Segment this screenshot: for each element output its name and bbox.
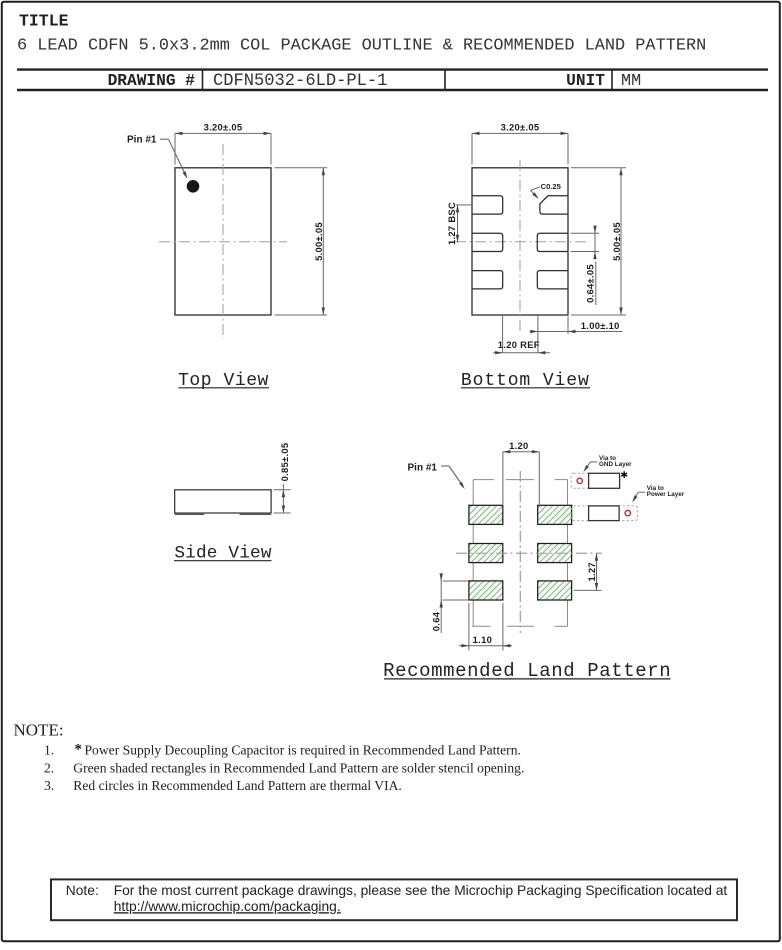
svg-text:1.20 REF: 1.20 REF (498, 339, 540, 350)
svg-text:6 LEAD CDFN 5.0x3.2mm COL PACK: 6 LEAD CDFN 5.0x3.2mm COL PACKAGE OUTLIN… (17, 36, 706, 55)
svg-text:Pin #1: Pin #1 (127, 135, 157, 146)
svg-text:1.27 BSC: 1.27 BSC (446, 202, 457, 245)
svg-text:C0.25: C0.25 (541, 182, 562, 191)
svg-text:Power Supply Decoupling Capaci: Power Supply Decoupling Capacitor is req… (85, 743, 521, 758)
svg-text:For the most current package d: For the most current package drawings, p… (114, 883, 728, 898)
svg-text:CDFN5032-6LD-PL-1: CDFN5032-6LD-PL-1 (213, 72, 387, 91)
svg-text:1.27: 1.27 (586, 562, 597, 581)
svg-text:*: * (75, 742, 82, 758)
svg-text:3.20±.05: 3.20±.05 (501, 121, 540, 132)
svg-text:Power Layer: Power Layer (647, 491, 685, 498)
svg-text:1.10: 1.10 (473, 634, 492, 645)
svg-text:0.64±.05: 0.64±.05 (585, 264, 596, 303)
svg-text:NOTE:: NOTE: (14, 720, 64, 739)
svg-text:Pin #1: Pin #1 (408, 462, 438, 473)
svg-text:TITLE: TITLE (19, 11, 69, 30)
svg-text:3.: 3. (44, 778, 54, 793)
svg-text:1.20: 1.20 (509, 440, 528, 451)
svg-text:0.64: 0.64 (431, 611, 442, 631)
svg-text:Green shaded rectangles in Rec: Green shaded rectangles in Recommended L… (73, 760, 524, 775)
svg-text:Red circles in Recommended Lan: Red circles in Recommended Land Pattern … (73, 778, 402, 793)
svg-text:Note:: Note: (66, 883, 99, 898)
svg-text:DRAWING #: DRAWING # (108, 72, 196, 90)
svg-text:5.00±.05: 5.00±.05 (313, 222, 324, 261)
svg-text:2.: 2. (44, 760, 54, 775)
svg-text:http://www.microchip.com/packa: http://www.microchip.com/packaging. (114, 899, 341, 914)
svg-text:UNIT: UNIT (566, 72, 605, 90)
svg-text:GND Layer: GND Layer (599, 461, 632, 468)
svg-text:0.85±.05: 0.85±.05 (279, 443, 290, 482)
svg-text:MM: MM (621, 72, 641, 91)
svg-text:1.: 1. (44, 743, 54, 758)
svg-text:5.00±.05: 5.00±.05 (611, 222, 622, 261)
svg-text:3.20±.05: 3.20±.05 (204, 121, 243, 132)
svg-text:1.00±.10: 1.00±.10 (581, 320, 620, 331)
